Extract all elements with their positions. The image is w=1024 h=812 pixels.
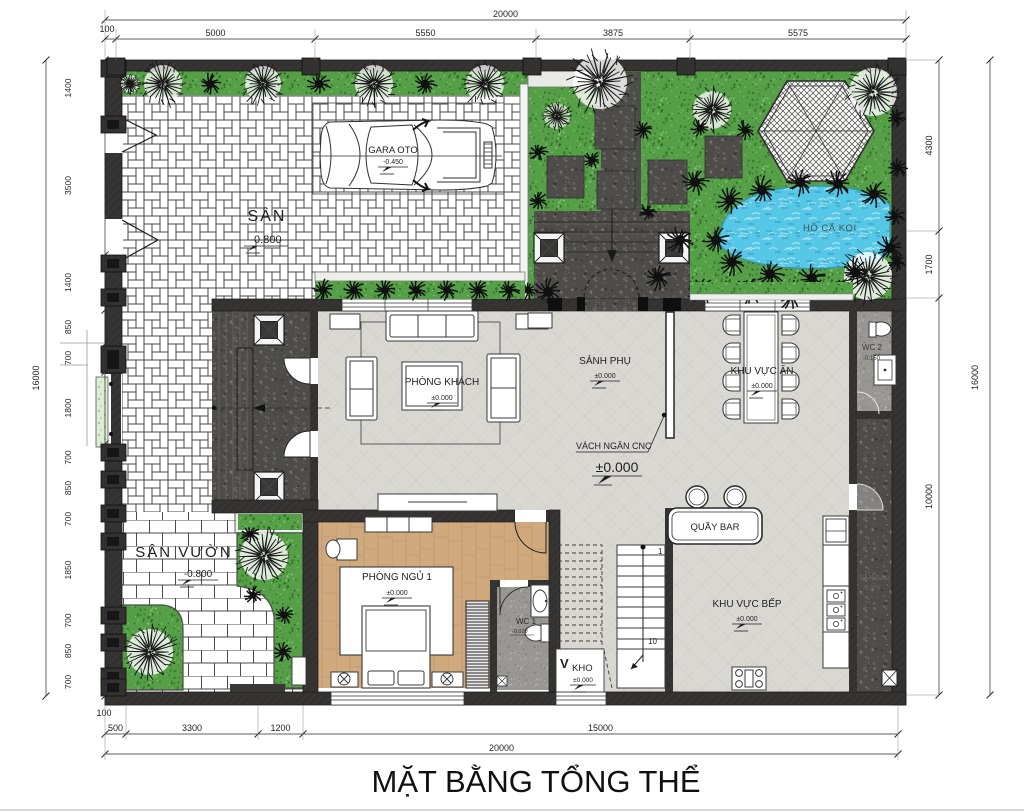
svg-text:SÂN SAU: SÂN SAU [859,573,890,582]
svg-text:1800: 1800 [63,398,73,417]
svg-text:3300: 3300 [182,723,202,733]
svg-text:850: 850 [63,320,73,334]
svg-text:KHO: KHO [572,663,593,674]
svg-text:700: 700 [63,675,73,689]
svg-text:QUẦY BAR: QUẦY BAR [691,522,740,533]
svg-text:HỒ CÁ KOI: HỒ CÁ KOI [803,222,857,234]
svg-text:-0.050: -0.050 [863,586,881,592]
svg-text:16000: 16000 [970,365,980,390]
svg-text:5000: 5000 [205,28,225,38]
svg-text:15000: 15000 [588,723,613,733]
svg-text:KHU VỰC BẾP: KHU VỰC BẾP [712,597,781,610]
svg-text:MẶT BẰNG TỔNG THỂ: MẶT BẰNG TỔNG THỂ [372,763,701,799]
svg-text:-0.800: -0.800 [250,234,281,246]
svg-text:-0.020: -0.020 [512,629,528,635]
svg-text:±0.000: ±0.000 [573,677,593,684]
svg-text:±0.000: ±0.000 [594,373,615,380]
svg-text:1700: 1700 [924,254,934,274]
svg-text:100: 100 [99,24,114,34]
svg-text:±0.000: ±0.000 [596,459,639,475]
svg-text:5550: 5550 [415,28,435,38]
svg-text:V: V [560,656,569,671]
svg-text:WC 1: WC 1 [516,617,537,626]
svg-text:-0.150: -0.150 [863,356,881,362]
svg-text:±0.000: ±0.000 [751,383,772,390]
svg-text:SÂN: SÂN [248,206,287,225]
svg-text:4300: 4300 [924,135,934,155]
svg-text:WC 2: WC 2 [862,343,883,352]
svg-text:GARA OTO: GARA OTO [368,145,417,156]
svg-text:SÂN VƯỜN: SÂN VƯỜN [135,544,233,561]
svg-text:850: 850 [63,644,73,658]
svg-text:20000: 20000 [493,9,518,19]
svg-text:PHÒNG NGỦ 1: PHÒNG NGỦ 1 [362,570,432,583]
svg-text:5575: 5575 [788,28,808,38]
svg-text:VÁCH NGĂN CNC: VÁCH NGĂN CNC [576,441,652,451]
svg-text:10: 10 [648,637,657,646]
svg-text:100: 100 [96,708,111,718]
svg-text:1400: 1400 [63,78,73,97]
svg-text:1200: 1200 [270,723,290,733]
svg-text:700: 700 [63,613,73,627]
svg-text:-0.800: -0.800 [184,569,213,580]
svg-text:700: 700 [63,450,73,464]
svg-text:3500: 3500 [63,176,73,195]
svg-text:16000: 16000 [31,365,41,390]
svg-text:20000: 20000 [489,743,514,753]
svg-text:1: 1 [658,547,663,556]
svg-text:850: 850 [63,481,73,495]
svg-text:±0.000: ±0.000 [386,590,407,597]
svg-text:SẢNH PHỤ: SẢNH PHỤ [579,354,631,367]
svg-text:KHU VỰC ĂN: KHU VỰC ĂN [731,364,794,377]
svg-text:1400: 1400 [63,273,73,292]
svg-text:700: 700 [63,351,73,365]
svg-text:1850: 1850 [63,560,73,579]
svg-text:±0.000: ±0.000 [431,395,452,402]
svg-text:-0.450: -0.450 [383,159,403,166]
svg-text:3875: 3875 [603,28,623,38]
svg-text:500: 500 [108,723,123,733]
svg-text:±0.000: ±0.000 [736,616,757,623]
svg-text:PHÒNG KHÁCH: PHÒNG KHÁCH [405,375,479,388]
svg-text:700: 700 [63,512,73,526]
svg-text:10000: 10000 [924,484,934,509]
